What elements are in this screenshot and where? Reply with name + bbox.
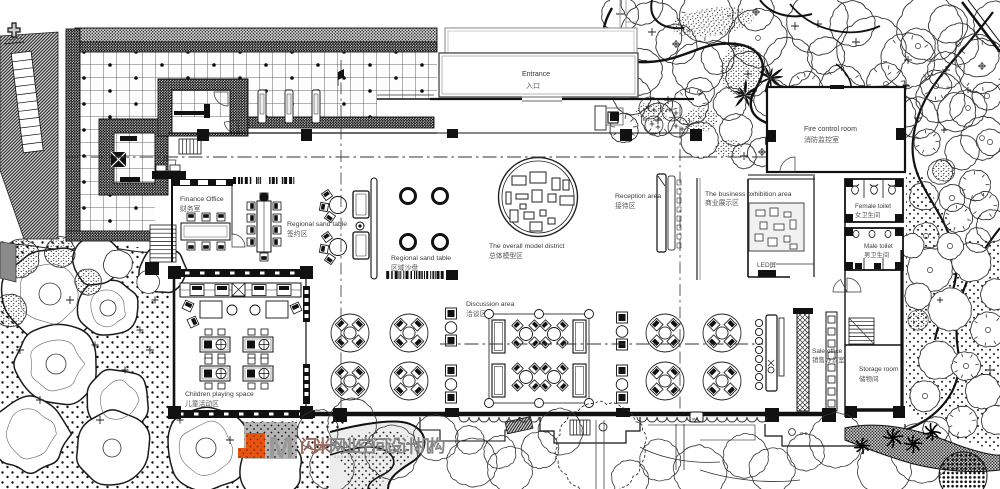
svg-text:储物间: 储物间 (859, 374, 879, 383)
svg-text:s p a c e d e s i g n g r o: s p a c e d e s i g n g r o u p (334, 454, 388, 459)
svg-text:女卫生间: 女卫生间 (855, 210, 880, 219)
svg-text:Entrance: Entrance (522, 71, 550, 78)
svg-text:财务室: 财务室 (180, 204, 201, 213)
svg-text:销售办公室: 销售办公室 (812, 355, 845, 364)
svg-text:Sale office: Sale office (812, 348, 843, 355)
svg-text:Finance Office: Finance Office (180, 196, 224, 203)
svg-text:商业展示区: 商业展示区 (705, 198, 739, 207)
svg-text:Reception area: Reception area (615, 193, 661, 200)
svg-text:接待区: 接待区 (615, 201, 636, 210)
svg-text:洽谈区: 洽谈区 (466, 309, 487, 318)
svg-text:Regional sand table: Regional sand table (391, 255, 451, 262)
svg-text:Discussion area: Discussion area (466, 301, 515, 308)
svg-text:入口: 入口 (526, 82, 540, 90)
svg-text:闪米: 闪米 (300, 436, 332, 456)
svg-text:总体模型区: 总体模型区 (489, 251, 523, 260)
svg-text:M: M (268, 430, 294, 465)
svg-text:网业空间设计机构: 网业空间设计机构 (329, 436, 445, 456)
svg-text:Female toilet: Female toilet (855, 203, 891, 210)
svg-text:Regional sand table: Regional sand table (287, 221, 347, 228)
svg-text:消防监控室: 消防监控室 (804, 135, 839, 144)
svg-text:儿童活动区: 儿童活动区 (185, 399, 219, 408)
svg-text:Storage room: Storage room (859, 366, 898, 373)
svg-text:The overall model district: The overall model district (489, 243, 565, 250)
svg-text:LED屏: LED屏 (757, 261, 777, 269)
svg-text:签约区: 签约区 (287, 229, 308, 238)
svg-text:The business exhibition area: The business exhibition area (705, 191, 792, 198)
svg-text:Male toilet: Male toilet (864, 243, 893, 250)
svg-text:男卫生间: 男卫生间 (864, 250, 889, 259)
svg-text:区域沙盘: 区域沙盘 (391, 263, 418, 272)
svg-text:Children playing space: Children playing space (185, 391, 254, 398)
svg-text:Fire control room: Fire control room (804, 126, 857, 133)
